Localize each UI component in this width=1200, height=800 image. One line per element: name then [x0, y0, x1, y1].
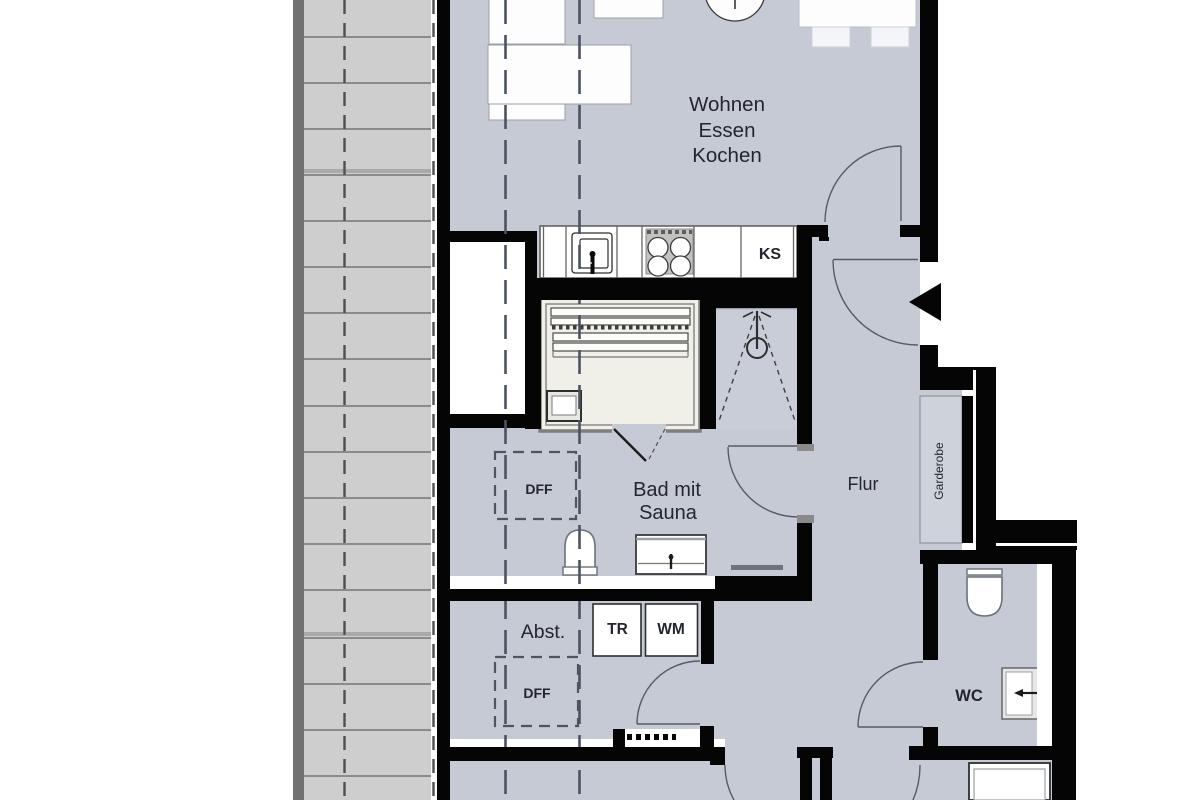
svg-text:DFF: DFF	[523, 685, 551, 701]
svg-text:TR: TR	[607, 621, 628, 638]
svg-text:DFF: DFF	[525, 481, 553, 497]
svg-text:WC: WC	[955, 687, 983, 705]
svg-text:Abst.: Abst.	[521, 621, 565, 643]
svg-text:Bad mit: Bad mit	[633, 479, 701, 501]
svg-text:Wohnen: Wohnen	[689, 93, 765, 116]
svg-text:Essen: Essen	[699, 119, 756, 142]
svg-text:Flur: Flur	[848, 474, 879, 494]
svg-text:Garderobe: Garderobe	[932, 442, 946, 500]
svg-text:Sauna: Sauna	[639, 502, 698, 524]
svg-text:WM: WM	[657, 621, 685, 638]
svg-text:Kochen: Kochen	[692, 144, 762, 167]
svg-text:KS: KS	[759, 246, 782, 263]
